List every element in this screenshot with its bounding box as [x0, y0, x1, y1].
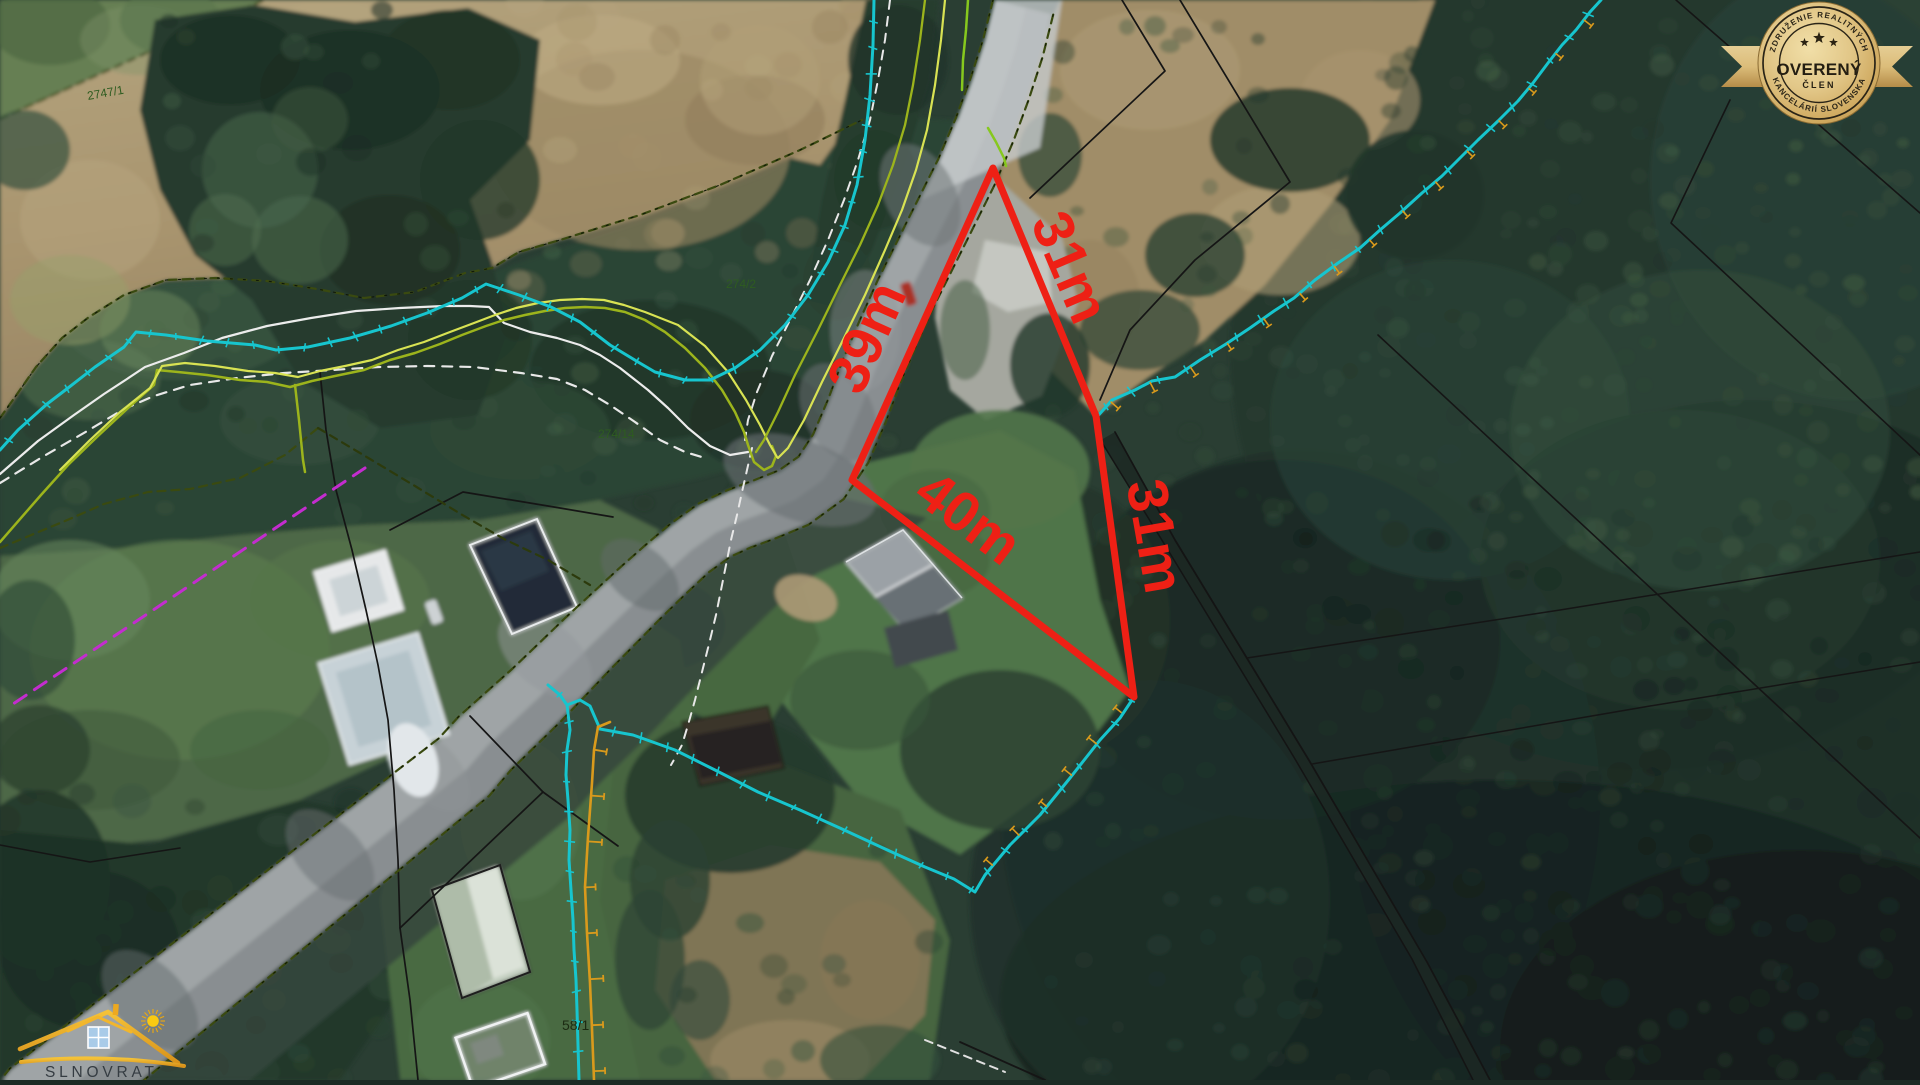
svg-text:274/14: 274/14	[598, 427, 635, 441]
svg-text:274/2: 274/2	[726, 277, 756, 291]
svg-text:SLNOVRAT: SLNOVRAT	[45, 1064, 158, 1080]
svg-text:58/1: 58/1	[562, 1017, 589, 1033]
svg-text:OVERENÝ: OVERENÝ	[1776, 60, 1862, 79]
svg-text:ČLEN: ČLEN	[1802, 79, 1835, 90]
